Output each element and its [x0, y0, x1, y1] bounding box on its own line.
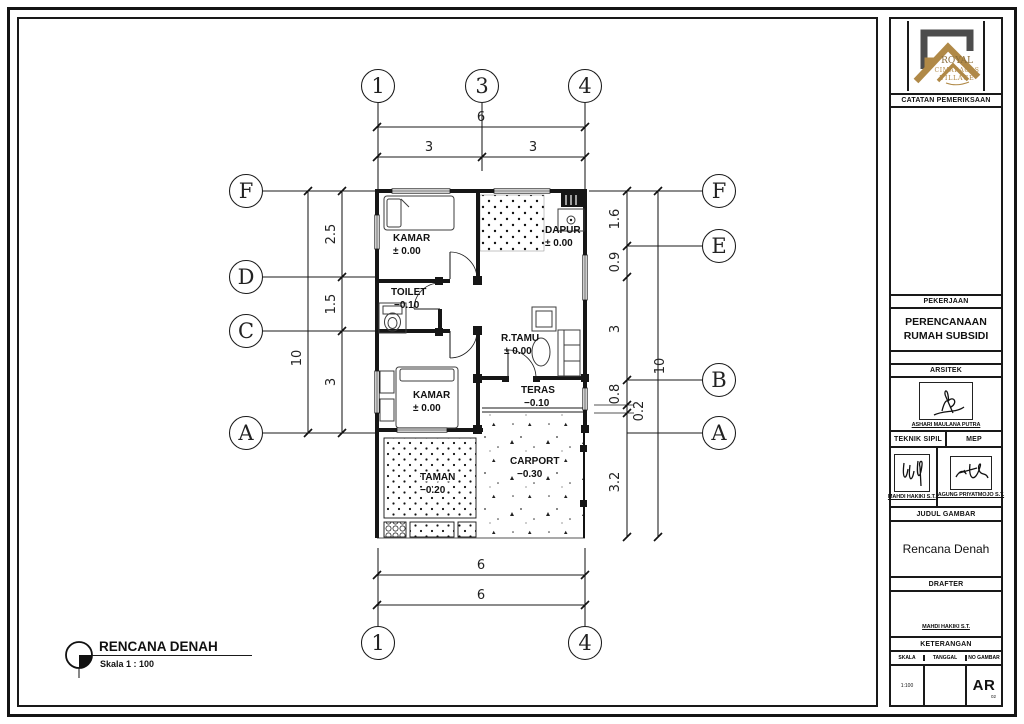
room-teras-name: TERAS — [521, 385, 555, 396]
arsitek-signature-box — [919, 382, 973, 420]
disiplin-header-row: TEKNIK SIPIL MEP — [891, 432, 1001, 448]
arsitek-signature-cell: ASHARI MAULANA PUTRA — [891, 378, 1001, 432]
mep-signature-icon — [951, 457, 991, 489]
dim-right-seg3: 3 — [608, 325, 623, 333]
tanggal-label: TANGGAL — [925, 655, 967, 661]
grid-bubble-left-f: F — [239, 179, 254, 203]
grid-bubble-top-4: 4 — [578, 74, 591, 98]
keterangan-header: KETERANGAN — [891, 638, 1001, 652]
logo-cell: ROYAL CIMARAGAS VILLAGE — [891, 19, 1001, 95]
royal-cimaragas-logo-icon: ROYAL CIMARAGAS VILLAGE — [910, 23, 982, 89]
judul-value: Rencana Denah — [891, 522, 1001, 578]
company-logo: ROYAL CIMARAGAS VILLAGE — [907, 21, 985, 91]
room-teras-elev: −0.10 — [524, 398, 550, 409]
room-dapur-name: DAPUR — [545, 225, 581, 236]
no-gambar-num: 02 — [991, 694, 996, 699]
room-kamar2-elev: ± 0.00 — [413, 403, 441, 414]
dim-top-overall: 6 — [477, 110, 485, 125]
meta-value-row: 1:100 AR 02 — [891, 666, 1001, 705]
mep-signature-box — [950, 456, 992, 490]
pekerjaan-value-text: PERENCANAAN RUMAH SUBSIDI — [893, 316, 999, 342]
catatan-notes-box — [891, 108, 1001, 296]
sheet-title: RENCANA DENAH Skala 1 : 100 — [66, 639, 252, 678]
grid-bubble-right-b: B — [711, 368, 726, 392]
spacer-row — [891, 352, 1001, 365]
no-gambar-label: NO GAMBAR — [967, 655, 1001, 661]
grid-bubble-left-d: D — [238, 265, 255, 289]
dim-left-overall: 10 — [290, 350, 305, 367]
arsitek-label: ARSITEK — [930, 367, 962, 374]
teknik-sipil-cell: MAHDI HAKIKI S.T. — [888, 448, 938, 506]
meta-header-row: SKALA TANGGAL NO GAMBAR — [891, 652, 1001, 666]
pekerjaan-header: PEKERJAAN — [891, 296, 1001, 309]
room-carport-name: CARPORT — [510, 456, 559, 467]
drafter-header: DRAFTER — [891, 578, 1001, 592]
no-gambar-cell: AR 02 — [967, 666, 1001, 705]
teknik-sipil-signature-box — [894, 454, 930, 492]
logo-line3: VILLAGE — [939, 74, 975, 82]
mep-name: AGUNG PRIYATMOJO S.T. — [938, 492, 1004, 498]
drafter-cell: MAHDI HAKIKI S.T. — [891, 592, 1001, 638]
room-taman-elev: −0.20 — [420, 485, 446, 496]
dim-right-seg1: 1.6 — [608, 209, 623, 230]
sheet-title-text: RENCANA DENAH — [99, 639, 218, 654]
arsitek-signature-icon — [920, 383, 972, 419]
arsitek-name: ASHARI MAULANA PUTRA — [912, 422, 981, 428]
dim-top-seg2: 3 — [529, 140, 537, 155]
room-kamar2-name: KAMAR — [413, 390, 451, 401]
planter-box-1 — [384, 522, 406, 537]
logo-line1: ROYAL — [941, 56, 973, 66]
grid-bubble-right-f: F — [712, 179, 727, 203]
sheet-scale-text: Skala 1 : 100 — [100, 659, 154, 669]
dim-left-seg3: 3 — [324, 378, 339, 386]
room-kamar1-name: KAMAR — [393, 233, 431, 244]
skala-label: SKALA — [891, 655, 925, 661]
bed-kamar1 — [384, 196, 454, 230]
no-gambar-code: AR — [973, 677, 996, 694]
title-block: ROYAL CIMARAGAS VILLAGE CATATAN PEMERIKS… — [889, 17, 1003, 707]
logo-line2: CIMARAGAS — [935, 67, 980, 74]
mep-label: MEP — [947, 432, 1001, 446]
drafter-name: MAHDI HAKIKI S.T. — [922, 624, 970, 630]
judul-label: JUDUL GAMBAR — [916, 511, 975, 518]
grid-bubble-top-3: 3 — [475, 74, 488, 98]
keterangan-label: KETERANGAN — [920, 641, 971, 648]
disiplin-signature-row: MAHDI HAKIKI S.T. AGUNG PRIYATMOJO S.T. — [891, 448, 1001, 508]
judul-value-text: Rencana Denah — [903, 542, 990, 556]
drawing-sheet: 6 3 3 6 6 10 2.5 1.5 3 10 1.6 0.9 3 0.8 … — [0, 0, 1024, 724]
dim-right-seg2: 0.9 — [608, 252, 623, 273]
teknik-sipil-signature-icon — [895, 455, 929, 491]
tanggal-value — [925, 666, 967, 705]
dim-left-seg2: 1.5 — [324, 294, 339, 315]
grid-bubble-left-c: C — [238, 319, 254, 343]
grid-bubble-bottom-1: 1 — [371, 631, 384, 655]
doors — [414, 252, 536, 378]
grid-bubble-right-e: E — [711, 234, 726, 258]
drafter-label: DRAFTER — [929, 581, 964, 588]
floor-plan-drawing: 6 3 3 6 6 10 2.5 1.5 3 10 1.6 0.9 3 0.8 … — [0, 0, 880, 724]
dim-right-seg6: 3.2 — [608, 472, 623, 493]
grid-bubble-right-a: A — [710, 421, 727, 445]
teknik-sipil-name: MAHDI HAKIKI S.T. — [888, 494, 936, 500]
dim-bottom-1: 6 — [477, 558, 485, 573]
room-carport-elev: −0.30 — [517, 469, 543, 480]
room-dapur-elev: ± 0.00 — [545, 238, 573, 249]
room-taman-name: TAMAN — [420, 472, 455, 483]
grid-bubble-top-1: 1 — [371, 74, 384, 98]
arsitek-header: ARSITEK — [891, 365, 1001, 378]
living-room-furniture — [532, 307, 580, 376]
dim-right-overall: 10 — [653, 358, 668, 375]
dim-right-seg4: 0.8 — [608, 384, 623, 405]
room-rtamu-name: R.TAMU — [501, 333, 539, 344]
pekerjaan-value: PERENCANAAN RUMAH SUBSIDI — [891, 309, 1001, 352]
grid-lines — [263, 103, 702, 626]
room-kamar1-elev: ± 0.00 — [393, 246, 421, 257]
teknik-sipil-label: TEKNIK SIPIL — [891, 432, 947, 446]
judul-header: JUDUL GAMBAR — [891, 508, 1001, 522]
room-toilet-name: TOILET — [391, 287, 426, 298]
planter-box-2 — [410, 522, 454, 537]
dapur-floor-pattern — [480, 195, 544, 251]
mep-cell: AGUNG PRIYATMOJO S.T. — [938, 448, 1004, 506]
dim-bottom-2: 6 — [477, 588, 485, 603]
catatan-header: CATATAN PEMERIKSAAN — [891, 95, 1001, 108]
dim-right-seg5: 0.2 — [632, 401, 647, 422]
dim-top-seg1: 3 — [425, 140, 433, 155]
catatan-label: CATATAN PEMERIKSAAN — [901, 97, 990, 104]
room-rtamu-elev: ± 0.00 — [504, 346, 532, 357]
pekerjaan-label: PEKERJAAN — [924, 298, 969, 305]
grid-bubble-bottom-4: 4 — [578, 631, 591, 655]
skala-value: 1:100 — [891, 666, 925, 705]
dim-left-seg1: 2.5 — [324, 224, 339, 245]
grid-bubble-left-a: A — [237, 421, 254, 445]
room-toilet-elev: −0.10 — [394, 300, 420, 311]
planter-box-3 — [458, 522, 476, 537]
